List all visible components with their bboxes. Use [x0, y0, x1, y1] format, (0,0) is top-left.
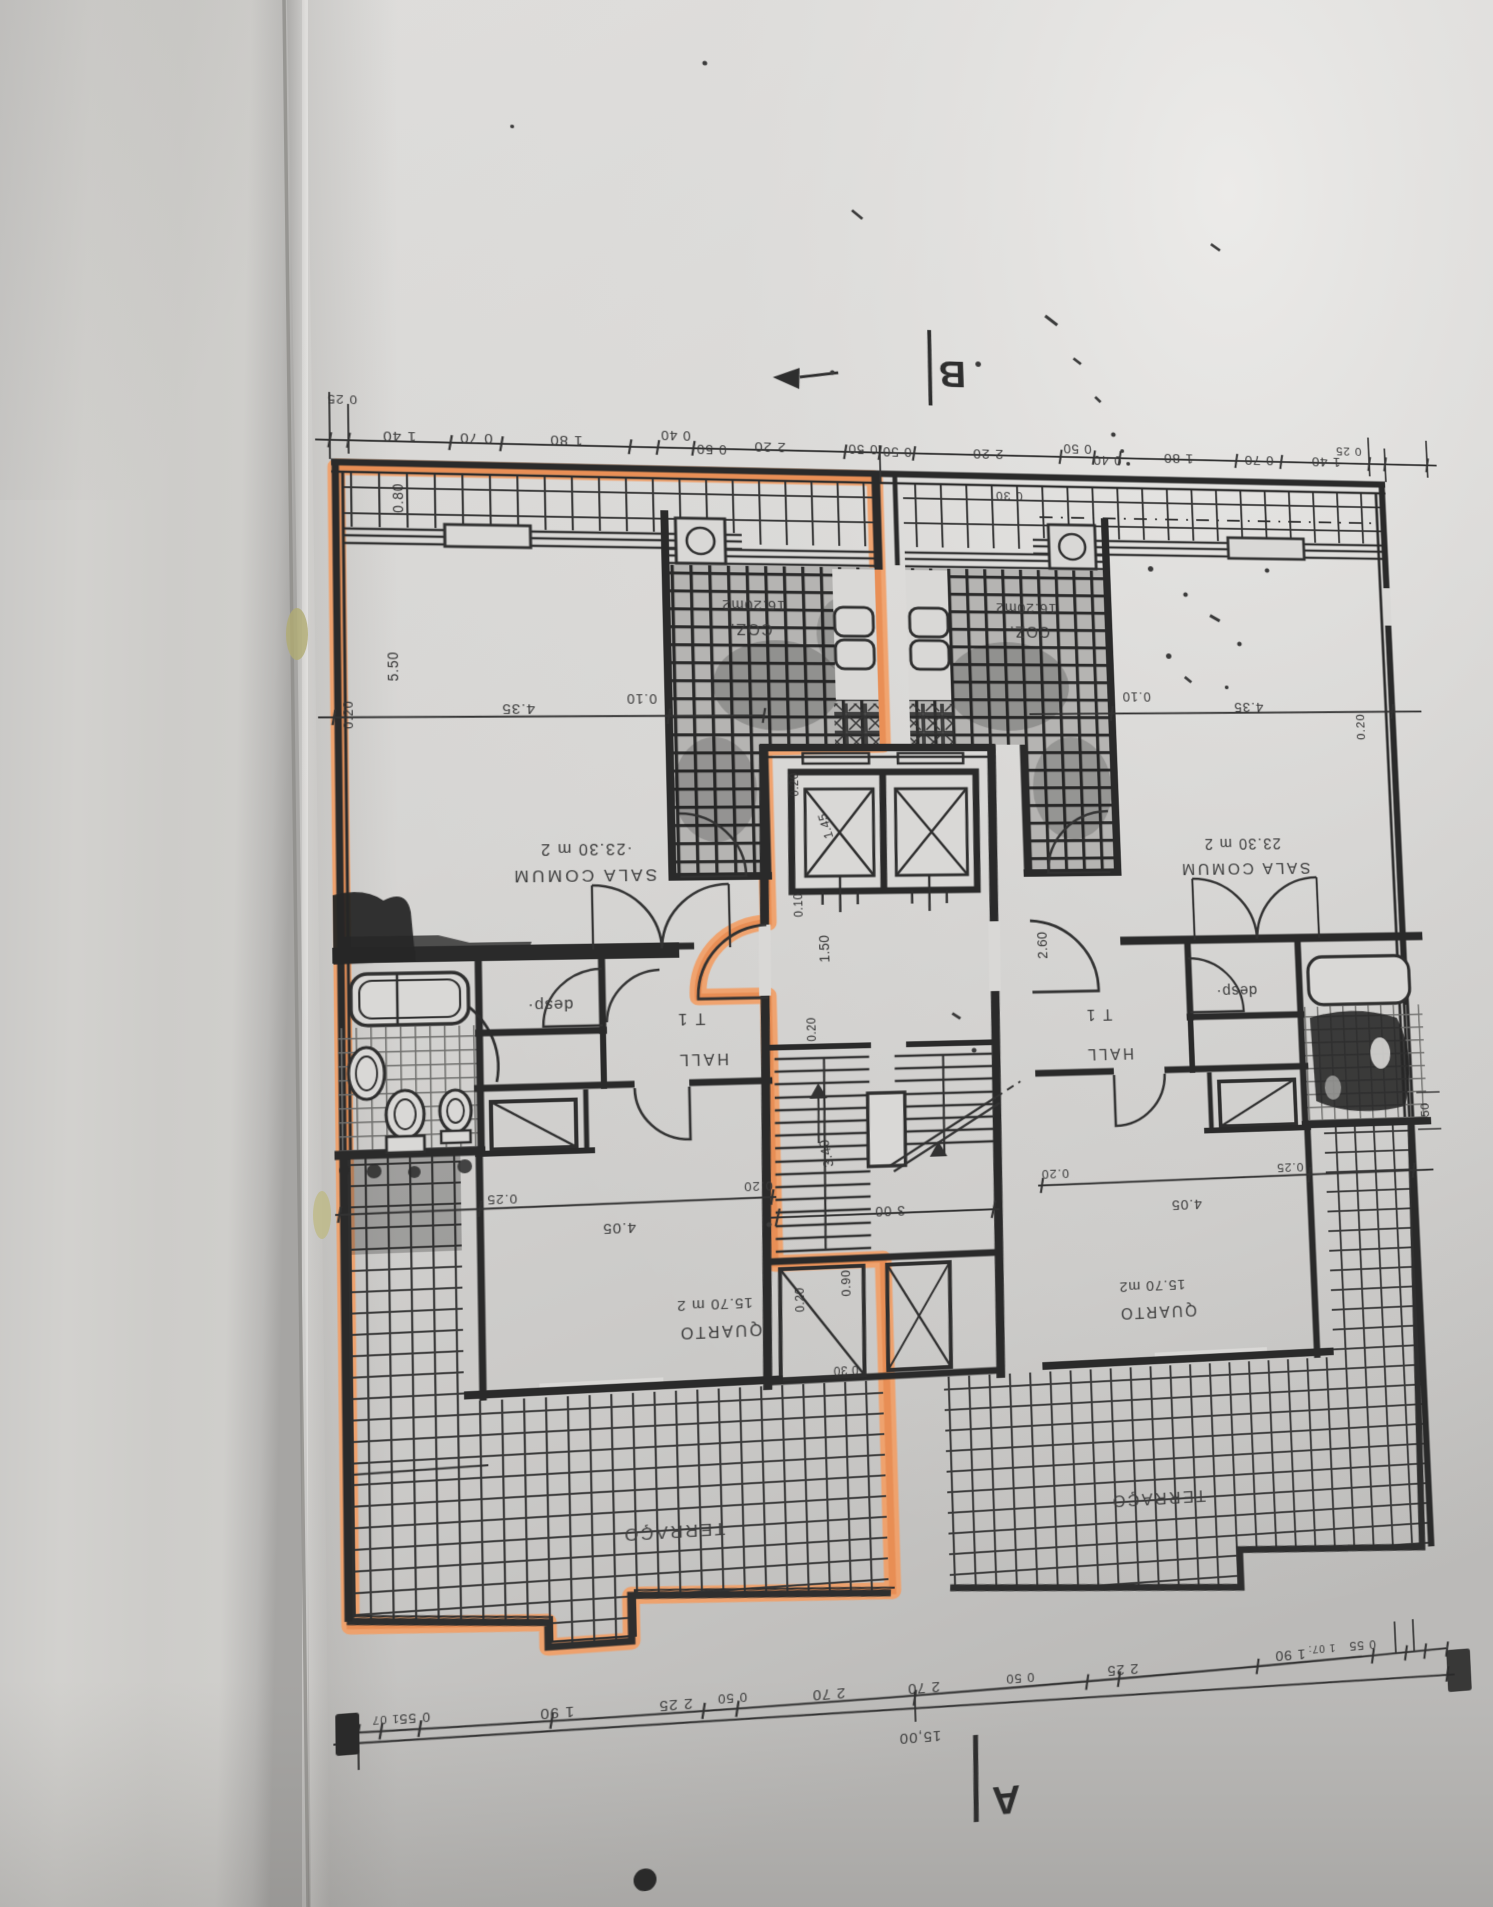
svg-text:1 80: 1 80 [1163, 450, 1194, 466]
svg-text:QUARTO: QUARTO [678, 1320, 762, 1341]
svg-text:0 55: 0 55 [1348, 1638, 1376, 1654]
svg-text:0 50: 0 50 [717, 1690, 747, 1707]
svg-text:HALL: HALL [1085, 1045, 1135, 1063]
svg-text:0.20: 0.20 [340, 700, 356, 729]
svg-text:0.10: 0.10 [791, 893, 805, 917]
svg-text:0 70: 0 70 [459, 430, 493, 447]
svg-text:0.25: 0.25 [486, 1192, 517, 1208]
svg-text:50: 50 [1418, 1102, 1432, 1117]
svg-text:desp·: desp· [527, 996, 574, 1014]
svg-text:0 30: 0 30 [995, 489, 1023, 503]
svg-text:SALA COMUM: SALA COMUM [511, 866, 657, 886]
svg-text:B: B [938, 353, 967, 395]
svg-text:COZ.: COZ. [729, 620, 773, 637]
svg-text:4.35: 4.35 [501, 701, 535, 717]
svg-text:0.90: 0.90 [838, 1269, 853, 1296]
svg-text:0.20: 0.20 [805, 1017, 819, 1042]
svg-text:0.20: 0.20 [793, 1287, 807, 1312]
svg-text:0 25: 0 25 [326, 392, 357, 407]
svg-text:15.70 m2: 15.70 m2 [1118, 1276, 1185, 1295]
svg-text:COZ.: COZ. [1008, 623, 1050, 640]
svg-text:1 07:: 1 07: [1308, 1641, 1336, 1654]
svg-text:2 20: 2 20 [972, 446, 1004, 462]
svg-text:1 90: 1 90 [539, 1702, 574, 1722]
svg-text:5.50: 5.50 [386, 651, 403, 681]
svg-text:2 70: 2 70 [812, 1684, 846, 1703]
svg-text:0 70: 0 70 [1244, 452, 1274, 468]
svg-text:A: A [991, 1776, 1021, 1823]
svg-text:16.20m2: 16.20m2 [721, 597, 785, 613]
svg-text:0 25: 0 25 [1335, 445, 1361, 459]
svg-text:3.40: 3.40 [817, 1138, 838, 1169]
svg-text:0 40: 0 40 [660, 427, 691, 442]
svg-text:HALL: HALL [676, 1050, 729, 1068]
svg-text:2.60: 2.60 [1035, 931, 1051, 959]
svg-text:0 55: 0 55 [398, 1709, 430, 1727]
svg-text:0.10: 0.10 [626, 690, 658, 705]
svg-text:0.20: 0.20 [787, 772, 801, 796]
svg-text:T 1: T 1 [1085, 1006, 1113, 1023]
svg-text:desp·: desp· [1215, 982, 1257, 999]
svg-text:T 1: T 1 [676, 1010, 705, 1028]
svg-text:0 50: 0 50 [1062, 441, 1091, 456]
svg-text:4.05: 4.05 [1171, 1196, 1203, 1213]
svg-text:0.25: 0.25 [1276, 1160, 1303, 1175]
svg-text:2 25: 2 25 [1106, 1660, 1138, 1679]
svg-text:4.35: 4.35 [1233, 699, 1264, 714]
svg-text:0.80: 0.80 [391, 483, 408, 513]
svg-text:15,00: 15,00 [899, 1727, 942, 1747]
svg-text:15.70 m 2: 15.70 m 2 [676, 1294, 753, 1314]
svg-text:0 50: 0 50 [1005, 1669, 1034, 1686]
svg-text:0 50: 0 50 [696, 441, 727, 456]
svg-text:1 40: 1 40 [382, 428, 416, 445]
svg-text:23.30 m 2: 23.30 m 2 [1203, 835, 1281, 852]
svg-text:2 25: 2 25 [658, 1694, 693, 1714]
svg-text:1.50: 1.50 [817, 935, 833, 963]
svg-text:1 90: 1 90 [1274, 1646, 1306, 1664]
svg-text:1 07: 1 07 [371, 1711, 399, 1725]
svg-text:SALA COMUM: SALA COMUM [1179, 859, 1311, 878]
svg-text:QUARTO: QUARTO [1118, 1301, 1197, 1321]
svg-text:16.20m2: 16.20m2 [995, 600, 1057, 616]
svg-text:2 20: 2 20 [753, 439, 786, 455]
svg-text:0.20: 0.20 [1041, 1166, 1069, 1181]
svg-text:4.05: 4.05 [602, 1219, 636, 1237]
svg-text:0.10: 0.10 [1121, 689, 1150, 703]
svg-text:3 00: 3 00 [874, 1202, 905, 1218]
svg-text:0 40: 0 40 [1092, 452, 1121, 467]
svg-text:2 70: 2 70 [907, 1678, 940, 1697]
svg-text:1 80: 1 80 [549, 432, 583, 448]
svg-text:0.20: 0.20 [1353, 713, 1367, 739]
svg-text:0.20: 0.20 [743, 1179, 773, 1194]
svg-text:0 30: 0 30 [833, 1363, 859, 1378]
svg-text:0 50: 0 50 [847, 441, 877, 456]
svg-text:·23.30 m 2: ·23.30 m 2 [539, 840, 632, 858]
svg-text:0 50: 0 50 [882, 444, 912, 459]
